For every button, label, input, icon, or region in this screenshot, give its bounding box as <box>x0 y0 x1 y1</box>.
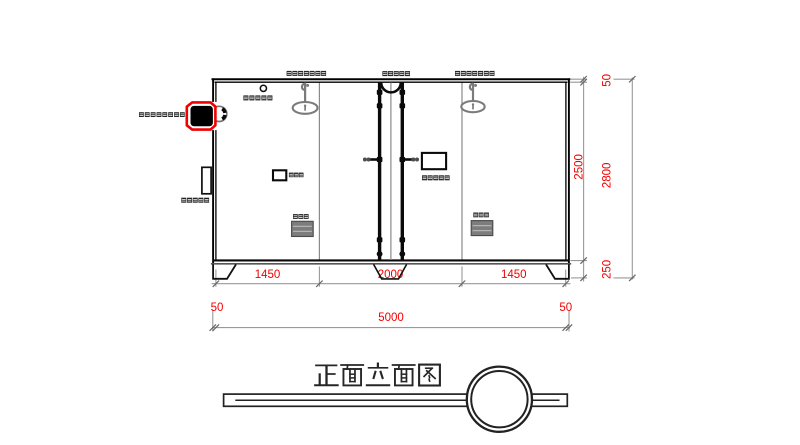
svg-text:1450: 1450 <box>255 269 281 281</box>
svg-text:250: 250 <box>601 260 613 279</box>
svg-text:1450: 1450 <box>501 269 527 281</box>
svg-text:5000: 5000 <box>378 312 404 324</box>
svg-text:50: 50 <box>211 302 224 314</box>
svg-text:50: 50 <box>559 302 572 314</box>
svg-text:50: 50 <box>601 74 613 87</box>
svg-text:2500: 2500 <box>573 154 585 180</box>
svg-text:2800: 2800 <box>601 163 613 189</box>
